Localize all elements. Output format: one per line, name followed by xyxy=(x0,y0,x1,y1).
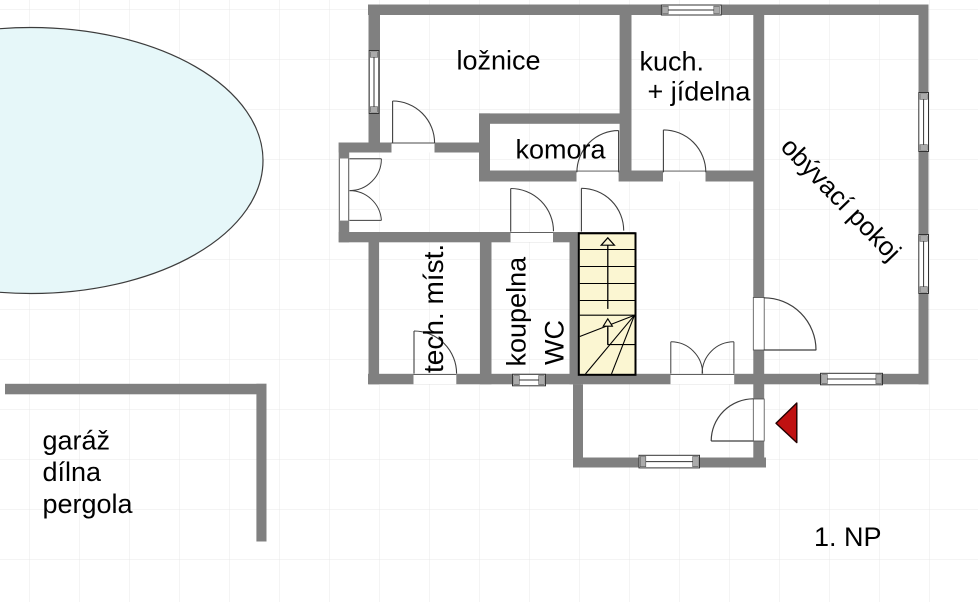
svg-text:dílna: dílna xyxy=(43,457,103,487)
svg-text:+ jídelna: + jídelna xyxy=(648,77,752,107)
svg-text:tech. míst.: tech. míst. xyxy=(418,244,449,373)
svg-text:1. NP: 1. NP xyxy=(814,522,882,552)
svg-text:kuch.: kuch. xyxy=(640,47,705,77)
svg-text:komora: komora xyxy=(516,135,607,165)
svg-text:pergola: pergola xyxy=(43,489,134,519)
svg-text:WC: WC xyxy=(540,320,570,365)
svg-text:koupelna: koupelna xyxy=(502,256,532,367)
svg-text:garáž: garáž xyxy=(43,426,111,456)
svg-text:ložnice: ložnice xyxy=(457,46,541,76)
